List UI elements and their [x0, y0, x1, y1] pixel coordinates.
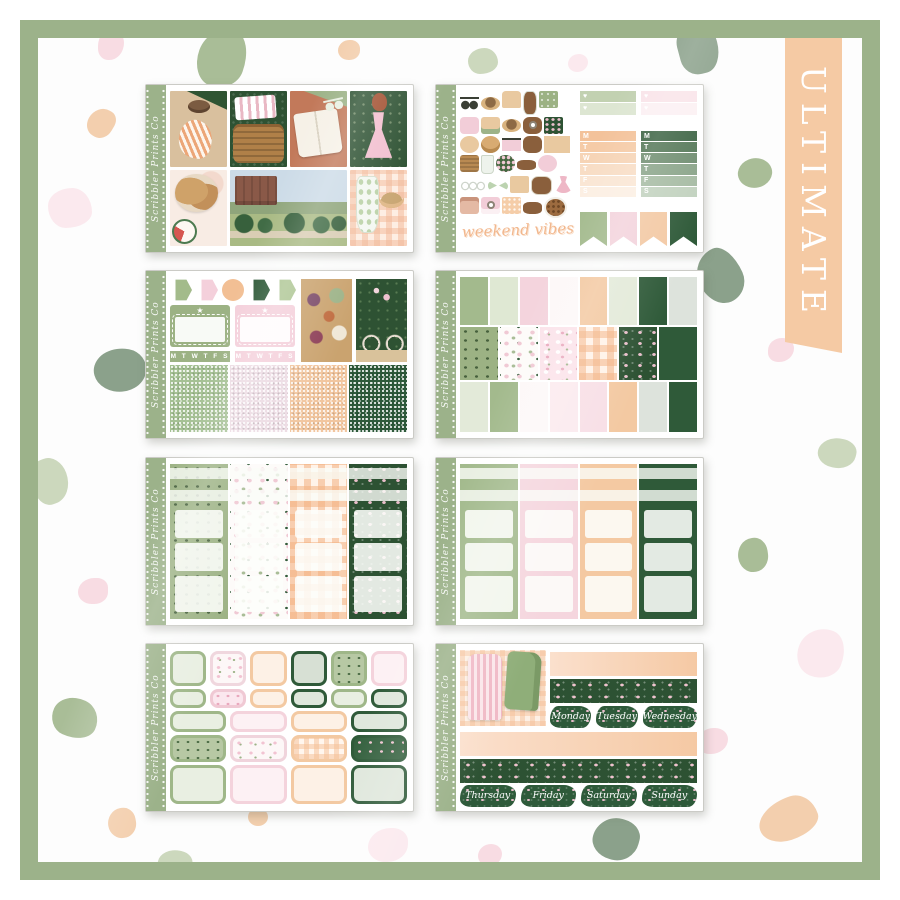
- weekday-letter: F: [580, 176, 636, 186]
- collage-photo-sticker: [350, 170, 407, 246]
- ultimate-ribbon: ULTIMATE: [785, 38, 842, 353]
- full-box-pattern-row: [460, 327, 697, 380]
- full-box-sticker: [639, 382, 667, 432]
- day-label-sticker: Thursday: [460, 785, 516, 807]
- deco-sticker-icon: [496, 155, 515, 172]
- collage-photo-sticker: [350, 91, 407, 167]
- pennant-flag-sticker: [580, 212, 607, 246]
- weekday-letter: M: [580, 131, 636, 141]
- rounded-box-sticker: [170, 651, 206, 686]
- date-cover-row: Thursday Friday Saturday Sunday: [460, 785, 697, 807]
- date-column-peach: MTWTFSS: [580, 131, 636, 208]
- deco-sticker-icon: [538, 155, 557, 172]
- deco-sticker-icon: [460, 97, 479, 110]
- pennant-flag-sticker: [610, 212, 637, 246]
- day-label-text: Friday: [521, 785, 577, 807]
- hexagon-sticker: [196, 279, 218, 301]
- full-box-sticker: [580, 382, 608, 432]
- day-label-text: Sunday: [642, 785, 698, 807]
- day-label-sticker: Sunday: [642, 785, 698, 807]
- full-box-sticker: [619, 327, 657, 380]
- rounded-box-row: [170, 765, 407, 804]
- hexagon-sticker: [170, 279, 192, 301]
- rounded-box-sticker: [351, 711, 407, 732]
- rounded-box-sticker: [250, 689, 286, 708]
- full-box-sticker: [550, 382, 578, 432]
- deco-sticker-icon: [554, 176, 573, 193]
- charcuterie-photo-sticker: [301, 279, 352, 362]
- deco-sticker-icon: [460, 155, 479, 172]
- brand-watermark: Scribbler Prints Co: [436, 644, 456, 811]
- full-box-sticker: [460, 277, 488, 325]
- deco-sticker-icon: [544, 117, 563, 134]
- bicycle-photo-sticker: [356, 279, 407, 362]
- rounded-box-row: [170, 711, 407, 732]
- rounded-box-sticker: [331, 651, 367, 686]
- collage-photo-sticker: [290, 91, 347, 167]
- weekday-letter: T: [641, 142, 697, 152]
- full-box-sticker: [609, 382, 637, 432]
- heart-icon: ♥: [583, 93, 587, 100]
- full-box-sticker: [520, 382, 548, 432]
- half-box-column-sticker: [230, 464, 288, 619]
- collage-photo-sticker: [170, 170, 227, 246]
- deco-sticker-icon: [481, 155, 494, 174]
- checklist-row: ♥: [641, 116, 697, 127]
- half-box-columns: [170, 464, 407, 619]
- pennant-flag-sticker: [670, 212, 697, 246]
- washi-strip-green-floral: [550, 679, 697, 703]
- collage-photo-sticker: [170, 91, 227, 167]
- sheet-half-boxes-patterned: Scribbler Prints Co: [145, 457, 414, 626]
- hexagon-sticker: [248, 279, 270, 301]
- weekend-script-banner: weekend vibes: [460, 219, 577, 248]
- rounded-box-row: [170, 735, 407, 762]
- washi-strip-peach: [460, 732, 697, 756]
- rounded-box-sticker: [230, 711, 286, 732]
- full-box-sticker: [609, 277, 637, 325]
- full-box-sticker: [460, 382, 488, 432]
- deco-icon-grid: [460, 91, 576, 219]
- pennant-flag-sticker: [640, 212, 667, 246]
- full-box-sticker: [669, 382, 697, 432]
- checklist-row: ♥: [580, 103, 636, 114]
- sheet-brand-strip: Scribbler Prints Co: [146, 271, 166, 438]
- glitter-swatch-sticker: [230, 365, 288, 432]
- day-label-sticker: Tuesday: [596, 706, 637, 728]
- day-label-sticker: Monday: [550, 706, 591, 728]
- half-box-column-sticker: [170, 464, 228, 619]
- weekday-letter: W: [641, 153, 697, 163]
- glitter-swatch-sticker: [349, 365, 407, 432]
- sheet-half-boxes-solid: Scribbler Prints Co: [435, 457, 704, 626]
- weekday-letter: T: [580, 164, 636, 174]
- heart-icon: ♥: [644, 118, 648, 125]
- rounded-box-sticker: [291, 651, 327, 686]
- glitter-swatch-sticker: [290, 365, 348, 432]
- hexagon-row: [170, 279, 298, 301]
- sheet-rounded-boxes: Scribbler Prints Co: [145, 643, 414, 812]
- marquee-label-pink: [235, 305, 295, 347]
- rounded-box-sticker: [371, 651, 407, 686]
- day-label-text: Thursday: [460, 785, 516, 807]
- ultimate-ribbon-label: ULTIMATE: [794, 66, 833, 322]
- day-label-text: Tuesday: [596, 706, 637, 728]
- weekday-letter: S: [641, 187, 697, 197]
- weekday-letter: S: [580, 198, 636, 208]
- outfit-photo-sticker: [460, 650, 546, 726]
- deco-sticker-icon: [481, 197, 500, 214]
- deco-sticker-icon: [523, 91, 537, 115]
- deco-sticker-icon: [460, 180, 486, 192]
- deco-sticker-icon: [502, 91, 521, 108]
- terrazzo-background: ULTIMATE Scribbler Prints Co Scribbler P…: [38, 38, 862, 862]
- rounded-box-sticker: [230, 735, 286, 762]
- half-box-column-sticker: [639, 464, 697, 619]
- deco-sticker-icon: [544, 136, 570, 153]
- deco-headers: ♥♥♥ ♥♥♥ MTWTFSS MTWTFSS: [580, 91, 697, 246]
- sheet-photo-collage: Scribbler Prints Co: [145, 84, 414, 253]
- full-box-sticker: [500, 327, 538, 380]
- weekday-letter: S: [580, 187, 636, 197]
- deco-cluster: weekend vibes: [460, 91, 576, 246]
- marquee-label-sage: [170, 305, 230, 347]
- deco-sticker-icon: [502, 138, 521, 151]
- heart-checklist-pink: ♥♥♥: [641, 91, 697, 127]
- deco-sticker-icon: [460, 136, 479, 153]
- rounded-box-sticker: [291, 765, 347, 804]
- pennant-row: [580, 212, 697, 246]
- hexagon-sticker: [222, 279, 244, 301]
- full-box-sticker: [580, 277, 608, 325]
- rounded-box-sticker: [291, 689, 327, 708]
- half-box-column-sticker: [580, 464, 638, 619]
- rounded-box-sticker: [351, 735, 407, 762]
- checklist-row: ♥: [641, 103, 697, 114]
- sheet-full-boxes: Scribbler Prints Co: [435, 270, 704, 439]
- deco-sticker-icon: [481, 136, 500, 153]
- brand-watermark: Scribbler Prints Co: [436, 271, 456, 438]
- full-box-sticker: [669, 277, 697, 325]
- rounded-box-sticker: [291, 735, 347, 762]
- full-box-sticker: [639, 277, 667, 325]
- hexagon-sticker: [274, 279, 296, 301]
- sheet-brand-strip: Scribbler Prints Co: [436, 458, 456, 625]
- day-label-text: Saturday: [581, 785, 637, 807]
- glitter-swatch-row: [170, 365, 407, 432]
- heart-icon: ♥: [644, 93, 648, 100]
- deco-sticker-icon: [544, 197, 567, 218]
- full-box-header-row: [460, 277, 697, 325]
- rounded-box-sticker: [351, 765, 407, 804]
- deco-sticker-icon: [460, 117, 479, 134]
- brand-watermark: Scribbler Prints Co: [146, 644, 166, 811]
- day-label-sticker: Wednesday: [643, 706, 697, 728]
- full-box-sticker: [550, 277, 578, 325]
- full-box-sticker: [490, 382, 518, 432]
- sheet-brand-strip: Scribbler Prints Co: [436, 271, 456, 438]
- heart-icon: ♥: [583, 118, 587, 125]
- sheet-brand-strip: Scribbler Prints Co: [146, 458, 166, 625]
- deco-sticker-icon: [523, 202, 542, 214]
- deco-sticker-icon: [531, 176, 552, 195]
- deco-sticker-icon: [481, 117, 500, 134]
- washi-strip-green-floral: [460, 759, 697, 783]
- collage-photo-sticker: [230, 170, 347, 246]
- heart-icon: ♥: [644, 105, 648, 112]
- deco-sticker-icon: [460, 197, 479, 214]
- collage-grid: [170, 91, 407, 246]
- deco-sticker-icon: [481, 97, 500, 110]
- rounded-box-sticker: [210, 689, 246, 708]
- weekday-letter: S: [641, 198, 697, 208]
- rounded-box-sticker: [170, 765, 226, 804]
- rounded-box-sticker: [291, 711, 347, 732]
- day-label-sticker: Friday: [521, 785, 577, 807]
- washi-strip-peach: [550, 652, 697, 676]
- collage-photo-sticker: [230, 91, 287, 167]
- week-header-strip-sage: M T W T F S S: [170, 351, 230, 362]
- brand-watermark: Scribbler Prints Co: [146, 85, 166, 252]
- weekday-letter: T: [580, 142, 636, 152]
- deco-sticker-icon: [510, 176, 529, 193]
- deco-sticker-icon: [523, 136, 542, 153]
- rounded-box-sticker: [170, 711, 226, 732]
- full-box-sticker: [460, 327, 498, 380]
- sheet-brand-strip: Scribbler Prints Co: [146, 644, 166, 811]
- rounded-box-sticker: [250, 651, 286, 686]
- brand-watermark: Scribbler Prints Co: [146, 271, 166, 438]
- half-box-column-sticker: [520, 464, 578, 619]
- full-box-sticker: [490, 277, 518, 325]
- rounded-box-sticker: [331, 689, 367, 708]
- date-cover-row: Monday Tuesday Wednesday: [550, 706, 697, 728]
- day-label-sticker: Saturday: [581, 785, 637, 807]
- glitter-swatch-sticker: [170, 365, 228, 432]
- week-header-strip-pink: M T W T F S S: [235, 351, 295, 362]
- weekday-letter: M: [641, 131, 697, 141]
- rounded-box-sticker: [170, 689, 206, 708]
- sheet-date-covers: Scribbler Prints Co Monday Tuesday Wedne…: [435, 643, 704, 812]
- deco-sticker-icon: [539, 91, 558, 108]
- weekday-letter: F: [641, 176, 697, 186]
- full-box-sticker: [540, 327, 578, 380]
- checklist-row: ♥: [580, 116, 636, 127]
- rounded-box-row: [170, 651, 407, 686]
- half-box-column-sticker: [460, 464, 518, 619]
- day-label-text: Wednesday: [643, 706, 697, 728]
- full-box-footer-row: [460, 382, 697, 432]
- sheet-deco-stickers: Scribbler Prints Co weekend vibes ♥♥♥ ♥♥…: [435, 84, 704, 253]
- weekday-letter: W: [580, 153, 636, 163]
- heart-icon: ♥: [583, 105, 587, 112]
- weekday-letter: T: [641, 164, 697, 174]
- full-box-sticker: [520, 277, 548, 325]
- full-box-sticker: [579, 327, 617, 380]
- deco-sticker-icon: [502, 197, 521, 214]
- half-box-column-sticker: [349, 464, 407, 619]
- sheet-brand-strip: Scribbler Prints Co: [146, 85, 166, 252]
- heart-checklist-sage: ♥♥♥: [580, 91, 636, 127]
- half-box-columns: [460, 464, 697, 619]
- day-label-text: Monday: [550, 706, 591, 728]
- deco-sticker-icon: [517, 160, 536, 170]
- checklist-row: ♥: [580, 91, 636, 102]
- rounded-box-sticker: [170, 735, 226, 762]
- deco-sticker-icon: [488, 180, 508, 192]
- sheet-brand-strip: Scribbler Prints Co: [436, 85, 456, 252]
- rounded-box-row: [170, 689, 407, 708]
- full-box-sticker: [659, 327, 697, 380]
- deco-sticker-icon: [523, 117, 542, 134]
- brand-watermark: Scribbler Prints Co: [146, 458, 166, 625]
- date-column-green: MTWTFSS: [641, 131, 697, 208]
- rounded-box-sticker: [230, 765, 286, 804]
- rounded-box-sticker: [371, 689, 407, 708]
- half-box-column-sticker: [290, 464, 348, 619]
- sheet-sampler: Scribbler Prints Co M T W T F S S M T W …: [145, 270, 414, 439]
- checklist-row: ♥: [641, 91, 697, 102]
- sheet-brand-strip: Scribbler Prints Co: [436, 644, 456, 811]
- brand-watermark: Scribbler Prints Co: [436, 85, 456, 252]
- brand-watermark: Scribbler Prints Co: [436, 458, 456, 625]
- deco-sticker-icon: [502, 119, 521, 132]
- rounded-box-sticker: [210, 651, 246, 686]
